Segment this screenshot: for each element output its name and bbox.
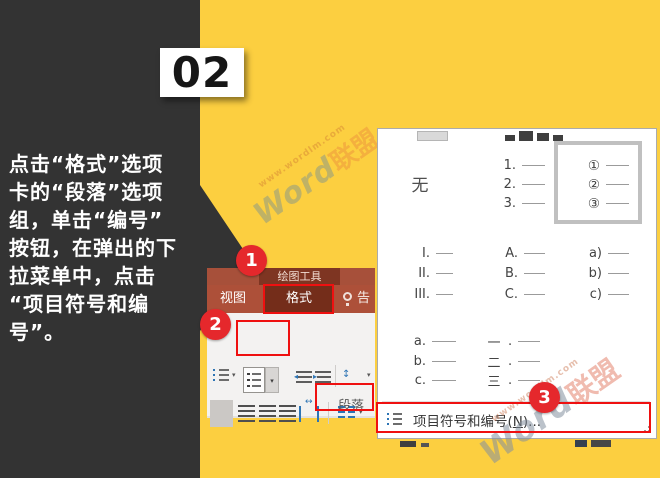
instruction-text: 点击“格式”选项 卡的“段落”选项 组，单击“编号” 按钮，在弹出的下 拉菜单中… [9,150,201,346]
highlight-rect-paragraph-group [315,383,374,411]
highlight-rect-menu-item [376,402,651,433]
numbering-dropdown-arrow[interactable]: ▾ [265,367,279,393]
clipped-ui-fragment [575,440,587,447]
clipped-ui-fragment [421,443,429,447]
drawing-tools-label: 绘图工具 [259,268,340,285]
bullets-dropdown-arrow-icon[interactable]: ▾ [232,372,236,379]
numbering-button[interactable] [243,367,265,393]
callout-badge-2: 2 [200,309,231,340]
step-number: 02 [172,48,232,97]
line-spacing-dropdown-arrow-icon[interactable]: ▾ [367,372,371,379]
callout-badge-3: 3 [529,382,560,413]
gallery-option-cjk[interactable]: 一. 二. 三. [482,332,540,391]
gallery-option-circled-selected[interactable]: ① ② ③ [584,156,629,213]
clipped-ui-fragment [400,441,416,447]
callout-badge-1: 1 [236,245,267,276]
gallery-option-alpha-paren[interactable]: a) b) c) [582,243,629,305]
gallery-option-roman[interactable]: I. II. III. [406,243,453,305]
highlight-rect-numbering-button [236,320,290,356]
clipped-text-fragment [505,135,515,141]
clipped-text-fragment [519,131,533,141]
gallery-option-lower-alpha[interactable]: a. b. c. [406,332,456,391]
tutorial-canvas: 02 点击“格式”选项 卡的“段落”选项 组，单击“编号” 按钮，在弹出的下 拉… [0,0,660,478]
tellme-lightbulb-icon [343,292,352,301]
contextual-tab-header: 绘图工具 [207,268,375,285]
clipped-text-fragment [537,133,549,141]
watermark-brand: Word [247,151,343,233]
increase-indent-button[interactable] [315,371,331,383]
tellme-label[interactable]: 告 [357,285,370,313]
watermark-top: www.wordlm.com Word联盟 [238,109,388,234]
highlight-rect-format-tab [263,284,334,314]
decrease-indent-button[interactable] [296,371,312,383]
clipped-ui-fragment [417,131,448,141]
clipped-ui-fragment [591,440,611,447]
gallery-option-none[interactable]: 无 [396,171,444,196]
bullets-button[interactable] [213,369,229,381]
numbering-dropdown-menu: 无 1. 2. 3. ① ② ③ I. II. III. A. B. C. a)… [377,128,657,439]
step-number-badge: 02 [160,48,244,97]
tab-view[interactable]: 视图 [220,285,246,313]
gallery-option-decimal[interactable]: 1. 2. 3. [496,156,545,213]
numbering-icon [247,373,250,388]
gallery-option-upper-alpha[interactable]: A. B. C. [496,243,545,305]
watermark-url: www.wordlm.com [238,109,367,203]
